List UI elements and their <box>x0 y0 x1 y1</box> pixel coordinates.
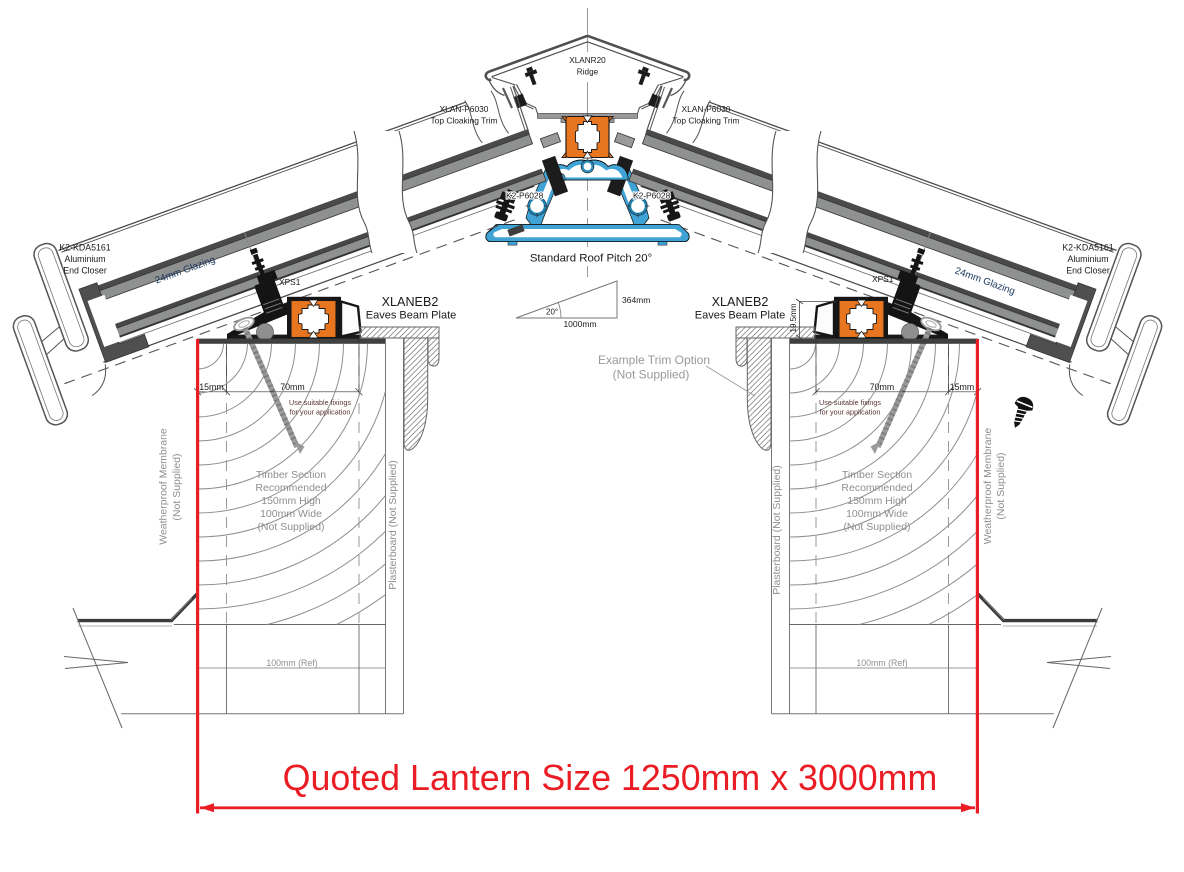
svg-text:(Not Supplied): (Not Supplied) <box>257 521 324 533</box>
svg-text:Aluminium: Aluminium <box>64 254 105 264</box>
svg-text:Aluminium: Aluminium <box>1067 254 1108 264</box>
svg-text:Top Cloaking Trim: Top Cloaking Trim <box>430 116 497 126</box>
svg-text:Standard Roof Pitch 20°: Standard Roof Pitch 20° <box>530 253 652 265</box>
svg-text:Recommended: Recommended <box>841 482 912 494</box>
svg-text:100mm (Ref): 100mm (Ref) <box>266 658 317 668</box>
svg-text:364mm: 364mm <box>622 295 650 305</box>
svg-text:Timber Section: Timber Section <box>842 469 912 481</box>
svg-text:Eaves Beam Plate: Eaves Beam Plate <box>366 310 457 322</box>
svg-text:19.5mm: 19.5mm <box>789 303 798 332</box>
svg-text:1000mm: 1000mm <box>563 319 596 329</box>
svg-text:XLAN-P6030: XLAN-P6030 <box>440 104 489 114</box>
svg-text:for your application: for your application <box>290 408 351 417</box>
svg-text:End Closer: End Closer <box>63 266 107 276</box>
svg-text:(Not Supplied): (Not Supplied) <box>843 521 910 533</box>
svg-text:XPS1: XPS1 <box>279 277 301 287</box>
svg-text:15mm: 15mm <box>199 382 223 392</box>
svg-text:K2-KDA5161: K2-KDA5161 <box>59 243 110 253</box>
svg-text:Ridge: Ridge <box>577 68 599 77</box>
svg-text:Use suitable fixings: Use suitable fixings <box>819 398 881 407</box>
svg-text:15mm: 15mm <box>950 382 974 392</box>
svg-text:100mm Wide: 100mm Wide <box>260 508 322 520</box>
svg-text:70mm: 70mm <box>870 382 894 392</box>
svg-text:(Not Supplied): (Not Supplied) <box>613 368 690 382</box>
svg-text:End Closer: End Closer <box>1066 266 1110 276</box>
svg-text:K2-P6028: K2-P6028 <box>633 191 671 201</box>
svg-text:Timber Section: Timber Section <box>256 469 326 481</box>
svg-text:150mm High: 150mm High <box>261 495 321 507</box>
svg-text:Top Cloaking Trim: Top Cloaking Trim <box>672 116 739 126</box>
svg-text:20°: 20° <box>546 308 558 317</box>
svg-text:K2-P6028: K2-P6028 <box>506 191 544 201</box>
svg-text:XPS1: XPS1 <box>872 274 894 284</box>
svg-text:Use suitable fixings: Use suitable fixings <box>289 398 351 407</box>
svg-text:XLANEB2: XLANEB2 <box>712 295 769 309</box>
svg-text:K2-KDA5161: K2-KDA5161 <box>1062 243 1113 253</box>
svg-text:100mm Wide: 100mm Wide <box>846 508 908 520</box>
svg-text:XLAN-P6030: XLAN-P6030 <box>682 104 731 114</box>
svg-text:Weatherproof Membrane: Weatherproof Membrane <box>982 428 994 545</box>
svg-text:Example Trim Option: Example Trim Option <box>598 353 710 367</box>
svg-text:Weatherproof Membrane: Weatherproof Membrane <box>158 428 170 545</box>
svg-text:70mm: 70mm <box>280 382 304 392</box>
svg-text:150mm High: 150mm High <box>847 495 907 507</box>
svg-text:Recommended: Recommended <box>255 482 326 494</box>
svg-text:100mm (Ref): 100mm (Ref) <box>856 658 907 668</box>
svg-text:for your application: for your application <box>820 408 881 417</box>
svg-text:Plasterboard (Not Supplied): Plasterboard (Not Supplied) <box>387 460 399 590</box>
svg-text:(Not Supplied): (Not Supplied) <box>171 453 183 520</box>
svg-text:XLANR20: XLANR20 <box>569 56 606 65</box>
svg-text:XLANEB2: XLANEB2 <box>382 295 439 309</box>
svg-text:(Not Supplied): (Not Supplied) <box>995 452 1007 519</box>
svg-text:Plasterboard (Not Supplied): Plasterboard (Not Supplied) <box>771 465 783 595</box>
svg-text:Eaves Beam Plate: Eaves Beam Plate <box>695 310 786 322</box>
svg-text:Quoted Lantern Size 1250mm x 3: Quoted Lantern Size 1250mm x 3000mm <box>283 758 938 798</box>
